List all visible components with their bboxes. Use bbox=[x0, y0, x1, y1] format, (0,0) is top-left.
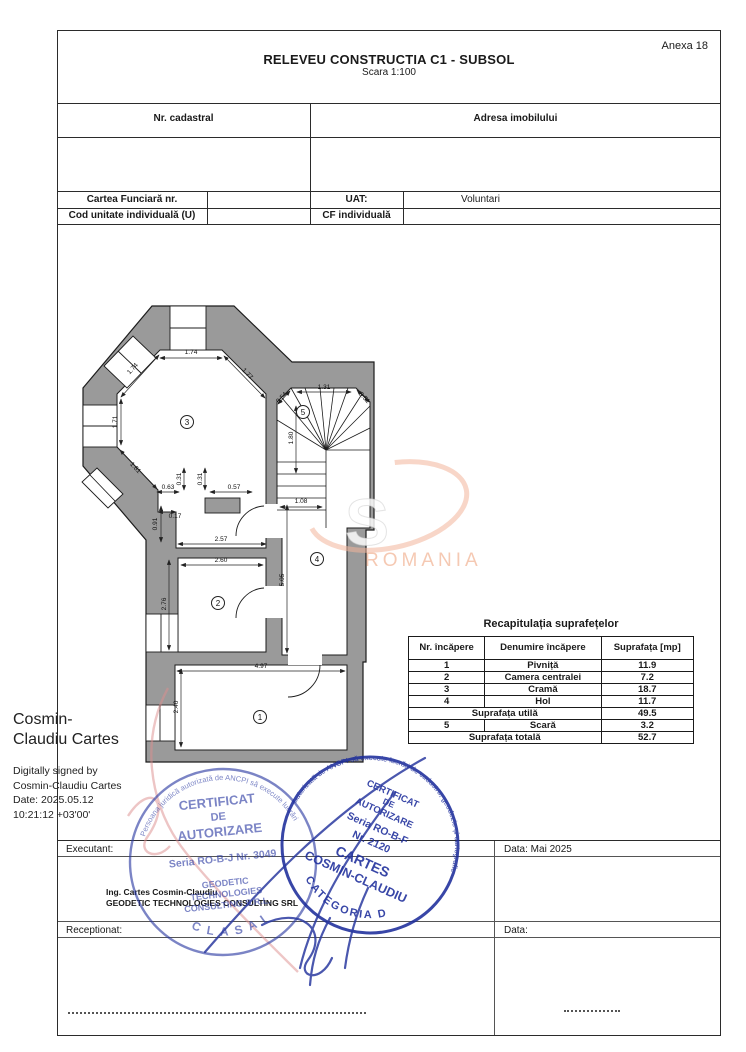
data-receptionat: Data: bbox=[504, 925, 528, 936]
svg-text:2.40: 2.40 bbox=[173, 700, 180, 713]
svg-text:2.57: 2.57 bbox=[215, 536, 228, 543]
svg-text:5.05: 5.05 bbox=[279, 573, 286, 586]
recap-row: 5Scară3.2 bbox=[409, 720, 694, 732]
recap-table: Nr. încăpereDenumire încăpereSuprafața [… bbox=[408, 636, 694, 744]
pillar bbox=[205, 498, 240, 513]
executant-label: Executant: bbox=[66, 844, 113, 855]
recap-header-cell: Denumire încăpere bbox=[485, 637, 601, 660]
recap-header-cell: Nr. încăpere bbox=[409, 637, 485, 660]
svg-text:2: 2 bbox=[216, 599, 221, 608]
svg-text:1.80: 1.80 bbox=[288, 431, 295, 444]
svg-text:4: 4 bbox=[315, 555, 320, 564]
executant-signature-dotline bbox=[68, 1011, 366, 1014]
executant-company: Ing. Cartes Cosmin-Claudiu GEODETIC TECH… bbox=[106, 887, 298, 909]
svg-text:4.97: 4.97 bbox=[255, 663, 268, 670]
recap-row: 2Camera centralei7.2 bbox=[409, 672, 694, 684]
svg-text:0.31: 0.31 bbox=[197, 472, 204, 485]
signer-name: Cosmin- Claudiu Cartes bbox=[13, 710, 163, 750]
recap-header-cell: Suprafața [mp] bbox=[601, 637, 694, 660]
svg-text:1.71: 1.71 bbox=[112, 415, 119, 428]
signature-details: Digitally signed by Cosmin-Claudiu Carte… bbox=[13, 764, 163, 822]
value-uat: Voluntari bbox=[461, 194, 581, 205]
label-cod-unitate: Cod unitate individuală (U) bbox=[57, 210, 207, 221]
document-title: RELEVEU CONSTRUCTIA C1 - SUBSOL bbox=[57, 52, 721, 67]
header-nr-cadastral: Nr. cadastral bbox=[57, 113, 310, 124]
area-recap-section: Recapitulația suprafețelor Nr. încăpereD… bbox=[408, 618, 694, 744]
floor-plan-drawing: 1.741.741.771.711.810.630.310.310.570.17… bbox=[70, 290, 390, 780]
recap-row: 4Hol11.7 bbox=[409, 696, 694, 708]
svg-text:0.17: 0.17 bbox=[169, 513, 182, 520]
svg-text:1.31: 1.31 bbox=[318, 384, 331, 391]
header-adresa: Adresa imobilului bbox=[310, 113, 721, 124]
recap-row: 3Cramă18.7 bbox=[409, 684, 694, 696]
label-cartea-funciara: Cartea Funciară nr. bbox=[57, 194, 207, 205]
document-page: { "page": { "anexa": "Anexa 18", "title"… bbox=[0, 0, 746, 1052]
footer-signature-table: Executant: Data: Mai 2025 Ing. Cartes Co… bbox=[57, 840, 721, 1036]
recap-row: Suprafața totală52.7 bbox=[409, 732, 694, 744]
svg-text:0.63: 0.63 bbox=[162, 484, 175, 491]
room-1-interior bbox=[175, 665, 347, 750]
svg-text:2.76: 2.76 bbox=[161, 597, 168, 610]
svg-text:3: 3 bbox=[185, 418, 190, 427]
label-uat: UAT: bbox=[310, 194, 403, 205]
receptionat-signature-dotline bbox=[564, 1009, 620, 1012]
recap-row: 1Pivniță11.9 bbox=[409, 660, 694, 672]
svg-text:1: 1 bbox=[258, 713, 263, 722]
digital-signature-block: Cosmin- Claudiu Cartes Digitally signed … bbox=[13, 710, 163, 822]
svg-text:0.91: 0.91 bbox=[152, 517, 159, 530]
recap-row: Suprafața utilă49.5 bbox=[409, 708, 694, 720]
svg-text:0.31: 0.31 bbox=[176, 472, 183, 485]
annex-number: Anexa 18 bbox=[662, 40, 708, 52]
svg-text:1.74: 1.74 bbox=[185, 349, 198, 356]
receptionat-label: Receptionat: bbox=[66, 925, 122, 936]
label-cf-individuala: CF individuală bbox=[310, 210, 403, 221]
document-scale: Scara 1:100 bbox=[57, 67, 721, 78]
svg-text:1.08: 1.08 bbox=[295, 498, 308, 505]
data-executant: Data: Mai 2025 bbox=[504, 844, 572, 855]
svg-text:2.60: 2.60 bbox=[215, 557, 228, 564]
recap-title: Recapitulația suprafețelor bbox=[408, 618, 694, 630]
svg-text:5: 5 bbox=[301, 408, 306, 417]
svg-text:0.57: 0.57 bbox=[228, 484, 241, 491]
